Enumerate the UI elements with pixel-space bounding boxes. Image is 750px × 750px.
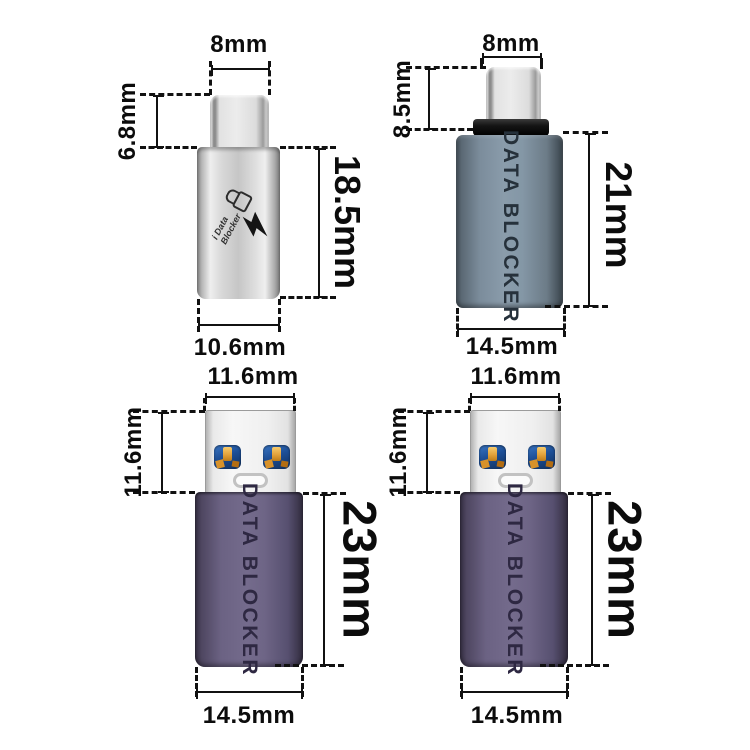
dim-label-left: 11.6mm xyxy=(385,406,413,497)
dim-line xyxy=(591,494,593,666)
dim-label-top: 11.6mm xyxy=(470,363,561,391)
usb-a-plug xyxy=(470,410,561,494)
adapter-bottom-right: DATA BLOCKER 11.6mm 11.6mm 23mm 14.5mm xyxy=(0,0,750,750)
body-text: DATA BLOCKER xyxy=(502,483,526,677)
dim-line xyxy=(461,691,568,693)
product-dimension-diagram: i Data Blocker 8mm 6.8mm 18.5mm 10.6m xyxy=(0,0,750,750)
dim-label-bottom: 14.5mm xyxy=(471,702,563,730)
dim-line xyxy=(426,412,428,493)
extension-line xyxy=(558,398,561,411)
dim-label-right: 23mm xyxy=(598,500,653,640)
usb-pin-window xyxy=(479,445,506,469)
usb-pin-window xyxy=(528,445,555,469)
dim-line xyxy=(470,396,560,398)
